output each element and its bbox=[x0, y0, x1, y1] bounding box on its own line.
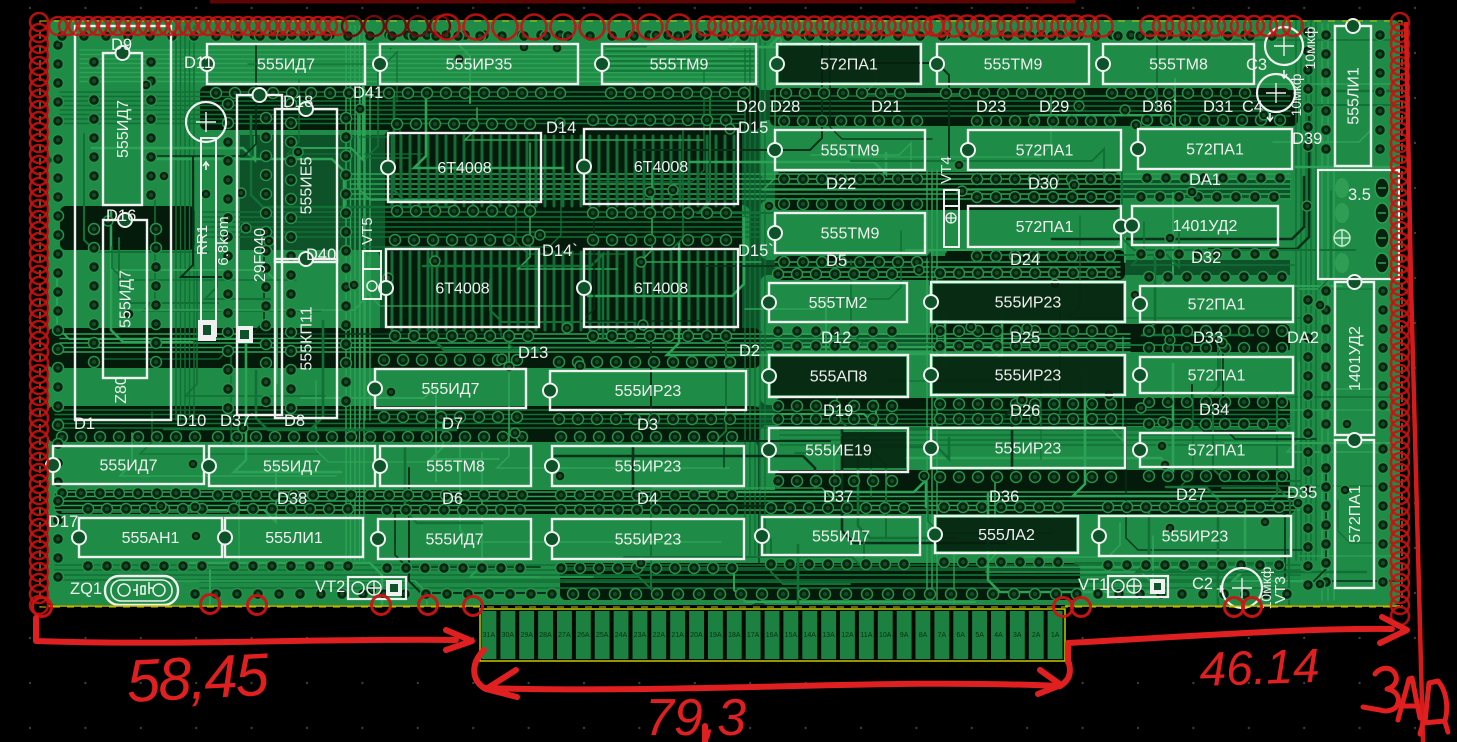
svg-text:D20: D20 bbox=[736, 98, 766, 116]
svg-text:555ТМ9: 555ТМ9 bbox=[821, 226, 880, 243]
svg-text:20A: 20A bbox=[690, 632, 703, 639]
svg-text:572ПА1: 572ПА1 bbox=[1186, 142, 1244, 159]
svg-text:572ПА1: 572ПА1 bbox=[820, 57, 878, 74]
svg-text:D31: D31 bbox=[1203, 98, 1233, 116]
svg-text:14A: 14A bbox=[803, 632, 816, 639]
svg-text:555ТМ9: 555ТМ9 bbox=[821, 143, 880, 160]
svg-text:D15`: D15` bbox=[738, 242, 774, 260]
svg-text:555ИР23: 555ИР23 bbox=[995, 441, 1062, 458]
svg-text:555АП8: 555АП8 bbox=[810, 369, 868, 386]
svg-text:D9: D9 bbox=[111, 36, 132, 54]
svg-text:D2: D2 bbox=[739, 342, 760, 360]
svg-text:Z80: Z80 bbox=[113, 376, 130, 404]
svg-text:4A: 4A bbox=[994, 632, 1003, 639]
svg-text:D17: D17 bbox=[48, 513, 78, 531]
svg-text:24A: 24A bbox=[615, 632, 628, 639]
svg-text:19A: 19A bbox=[709, 632, 722, 639]
svg-text:VT2: VT2 bbox=[315, 578, 345, 596]
svg-text:555ИЕ5: 555ИЕ5 bbox=[299, 157, 316, 215]
svg-text:DA1: DA1 bbox=[1189, 171, 1221, 189]
svg-text:D7: D7 bbox=[442, 415, 463, 433]
svg-text:572ПА1: 572ПА1 bbox=[1188, 297, 1246, 314]
svg-text:11A: 11A bbox=[860, 632, 872, 639]
svg-text:555ЛА2: 555ЛА2 bbox=[978, 527, 1035, 544]
svg-text:D33: D33 bbox=[1193, 329, 1223, 347]
svg-text:555ИР23: 555ИР23 bbox=[995, 295, 1062, 312]
svg-text:D41: D41 bbox=[353, 84, 383, 102]
svg-text:555ТМ8: 555ТМ8 bbox=[1149, 57, 1208, 74]
svg-text:555ЛИ1: 555ЛИ1 bbox=[1346, 67, 1363, 125]
svg-text:D36`: D36` bbox=[1142, 98, 1178, 116]
svg-text:1401УД2: 1401УД2 bbox=[1173, 218, 1238, 235]
svg-text:D14`: D14` bbox=[542, 242, 578, 260]
svg-text:572ПА1: 572ПА1 bbox=[1188, 368, 1246, 385]
svg-text:D13: D13 bbox=[518, 344, 548, 362]
svg-text:D29: D29 bbox=[1039, 98, 1069, 116]
svg-text:555ЛИ1: 555ЛИ1 bbox=[265, 530, 323, 547]
svg-text:555ИР23: 555ИР23 bbox=[615, 383, 682, 400]
svg-text:1A: 1A bbox=[1051, 632, 1060, 639]
svg-text:D3: D3 bbox=[637, 416, 658, 434]
svg-text:555ИР23: 555ИР23 bbox=[615, 532, 682, 549]
svg-text:+: + bbox=[1216, 581, 1225, 598]
svg-text:555ТМ9: 555ТМ9 bbox=[650, 57, 709, 74]
svg-text:D34: D34 bbox=[1199, 401, 1229, 419]
svg-text:28A: 28A bbox=[539, 632, 552, 639]
svg-text:D19: D19 bbox=[823, 402, 853, 420]
svg-text:D21: D21 bbox=[871, 98, 901, 116]
svg-text:D5: D5 bbox=[826, 252, 847, 270]
svg-text:D14: D14 bbox=[546, 119, 576, 137]
svg-text:VT1: VT1 bbox=[1078, 576, 1108, 594]
svg-text:555ИР23: 555ИР23 bbox=[615, 459, 682, 476]
svg-text:58,45: 58,45 bbox=[125, 641, 271, 715]
svg-text:555ИД7: 555ИД7 bbox=[812, 529, 870, 546]
svg-text:17A: 17A bbox=[747, 632, 760, 639]
svg-text:D8: D8 bbox=[284, 412, 305, 430]
svg-text:D26: D26 bbox=[1010, 402, 1040, 420]
svg-text:6Т4008: 6Т4008 bbox=[435, 281, 489, 298]
svg-text:D11: D11 bbox=[184, 54, 213, 72]
svg-text:D25: D25 bbox=[1010, 329, 1040, 347]
svg-text:5A: 5A bbox=[975, 632, 984, 639]
svg-text:572ПА1: 572ПА1 bbox=[1016, 219, 1074, 236]
svg-text:555ИР35: 555ИР35 bbox=[446, 57, 513, 74]
svg-text:572ПА1: 572ПА1 bbox=[1188, 443, 1246, 460]
svg-text:D1: D1 bbox=[74, 415, 95, 433]
svg-text:25A: 25A bbox=[596, 632, 609, 639]
svg-text:555ИР23: 555ИР23 bbox=[1162, 529, 1229, 546]
svg-text:29F040: 29F040 bbox=[252, 228, 269, 282]
svg-text:D37: D37 bbox=[823, 488, 853, 506]
svg-text:D18: D18 bbox=[283, 93, 313, 111]
svg-text:555КП11: 555КП11 bbox=[299, 306, 316, 370]
svg-text:22A: 22A bbox=[653, 632, 666, 639]
svg-text:D32: D32 bbox=[1191, 249, 1221, 267]
svg-text:15A: 15A bbox=[785, 632, 798, 639]
svg-text:D10: D10 bbox=[176, 412, 206, 430]
svg-text:6A: 6A bbox=[956, 632, 965, 639]
svg-text:D23: D23 bbox=[976, 98, 1006, 116]
svg-text:VT3: VT3 bbox=[1272, 576, 1289, 604]
svg-text:D16: D16 bbox=[106, 207, 136, 225]
svg-text:31A: 31A bbox=[483, 632, 496, 639]
svg-text:3.5: 3.5 bbox=[1348, 186, 1371, 204]
svg-text:D24: D24 bbox=[1010, 251, 1040, 269]
svg-text:555ТМ9: 555ТМ9 bbox=[984, 57, 1043, 74]
svg-text:555ИД7: 555ИД7 bbox=[100, 458, 158, 475]
svg-text:D28: D28 bbox=[770, 98, 800, 116]
svg-text:555ТМ2: 555ТМ2 bbox=[809, 295, 868, 312]
svg-text:555ИД7: 555ИД7 bbox=[115, 100, 132, 158]
svg-text:555ИЕ19: 555ИЕ19 bbox=[805, 443, 872, 460]
svg-text:6.8kom: 6.8kom bbox=[215, 216, 232, 265]
svg-text:D37`: D37` bbox=[220, 412, 256, 430]
svg-text:10мкф: 10мкф bbox=[1302, 27, 1318, 70]
svg-text:27A: 27A bbox=[558, 632, 571, 639]
svg-text:3A: 3A bbox=[1013, 632, 1022, 639]
svg-text:C3: C3 bbox=[1246, 56, 1267, 74]
svg-text:29A: 29A bbox=[520, 632, 533, 639]
svg-text:D12: D12 bbox=[821, 329, 851, 347]
svg-text:D30: D30 bbox=[1028, 175, 1058, 193]
svg-text:D36: D36 bbox=[989, 488, 1019, 506]
svg-text:8A: 8A bbox=[919, 632, 928, 639]
svg-text:555ИД7: 555ИД7 bbox=[263, 459, 321, 476]
svg-text:VT4: VT4 bbox=[938, 156, 955, 184]
svg-text:46.14: 46.14 bbox=[1199, 640, 1321, 697]
svg-text:2A: 2A bbox=[1032, 632, 1041, 639]
svg-text:10A: 10A bbox=[879, 632, 892, 639]
svg-text:D39: D39 bbox=[1292, 130, 1322, 148]
svg-text:572ПА1: 572ПА1 bbox=[1016, 143, 1074, 160]
svg-text:13A: 13A bbox=[822, 632, 835, 639]
svg-text:555ИД7: 555ИД7 bbox=[118, 270, 135, 328]
svg-text:C2: C2 bbox=[1192, 575, 1213, 593]
svg-text:23A: 23A bbox=[634, 632, 647, 639]
svg-text:D27: D27 bbox=[1176, 486, 1206, 504]
svg-text:D40: D40 bbox=[306, 246, 336, 264]
svg-text:26A: 26A bbox=[577, 632, 590, 639]
svg-text:572ПА1: 572ПА1 bbox=[1347, 485, 1364, 543]
svg-text:1401УД2: 1401УД2 bbox=[1347, 326, 1364, 391]
svg-text:555ИР23: 555ИР23 bbox=[995, 368, 1062, 385]
svg-text:30A: 30A bbox=[502, 632, 515, 639]
svg-text:6Т4008: 6Т4008 bbox=[437, 160, 491, 177]
svg-text:C4: C4 bbox=[1242, 98, 1263, 116]
svg-text:D6: D6 bbox=[442, 490, 463, 508]
svg-text:VT5: VT5 bbox=[359, 217, 376, 245]
svg-text:DA2: DA2 bbox=[1287, 329, 1319, 347]
svg-text:18A: 18A bbox=[728, 632, 741, 639]
svg-text:79,3: 79,3 bbox=[645, 689, 746, 742]
svg-text:555ИД7: 555ИД7 bbox=[426, 532, 484, 549]
svg-text:D15: D15 bbox=[738, 119, 768, 137]
svg-text:D22: D22 bbox=[826, 175, 856, 193]
svg-text:D4: D4 bbox=[637, 490, 658, 508]
svg-text:555АН1: 555АН1 bbox=[122, 530, 180, 547]
svg-text:6Т4008: 6Т4008 bbox=[634, 281, 688, 298]
svg-text:ZQ1: ZQ1 bbox=[70, 580, 102, 598]
svg-text:D38: D38 bbox=[277, 490, 307, 508]
svg-text:555ИД7: 555ИД7 bbox=[257, 57, 315, 74]
svg-text:12A: 12A bbox=[841, 632, 854, 639]
svg-text:555ТМ8: 555ТМ8 bbox=[426, 459, 485, 476]
svg-text:7A: 7A bbox=[938, 632, 947, 639]
svg-text:555ИД7: 555ИД7 bbox=[422, 381, 480, 398]
svg-text:RR1: RR1 bbox=[194, 225, 211, 255]
svg-text:21A: 21A bbox=[671, 632, 684, 639]
svg-text:6Т4008: 6Т4008 bbox=[634, 159, 688, 176]
svg-text:9A: 9A bbox=[900, 632, 909, 639]
svg-text:16A: 16A bbox=[766, 632, 779, 639]
svg-text:D35: D35 bbox=[1287, 484, 1317, 502]
